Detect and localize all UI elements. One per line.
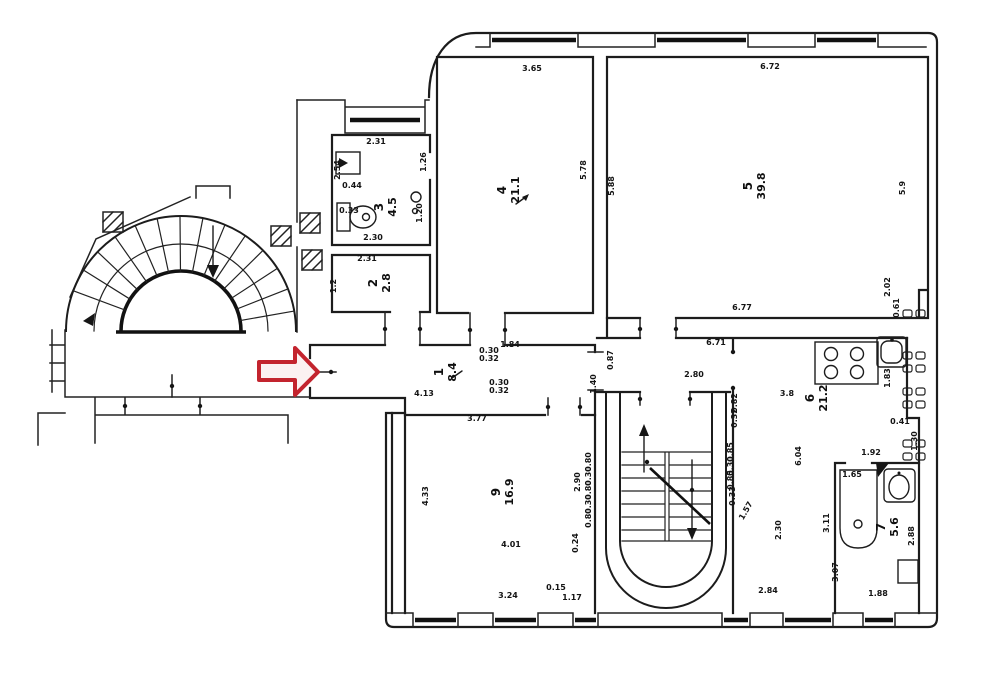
dimension-label: 4.13 bbox=[414, 389, 434, 398]
dimension-label: 0.61 bbox=[892, 298, 901, 318]
room-number-label: 3 bbox=[372, 203, 386, 211]
stair-inner-u bbox=[620, 392, 712, 587]
dimension-label: 5.9 bbox=[898, 180, 907, 195]
room-area-label: 4.5 bbox=[386, 197, 399, 217]
dimension-label: 4.01 bbox=[501, 540, 521, 549]
dimension-label: 1.2 bbox=[329, 279, 338, 293]
spiral-tread-line bbox=[135, 226, 157, 276]
dimension-label: 1.92 bbox=[861, 448, 881, 457]
dimension-label: 3.11 bbox=[822, 513, 831, 533]
main-staircase bbox=[606, 392, 726, 608]
dimension-label: 3.77 bbox=[467, 414, 487, 423]
bathtub-fixture bbox=[840, 470, 877, 548]
dimension-label: 0.32 bbox=[730, 408, 739, 428]
room-area-label: 21.1 bbox=[509, 176, 522, 203]
spiral-outer-arc bbox=[66, 216, 296, 331]
north-arrow-head-icon bbox=[522, 194, 529, 201]
room-area-label: 16.9 bbox=[503, 478, 516, 505]
spiral-staircase bbox=[66, 216, 296, 332]
dimension-labels-layer: 3.656.725.785.885.96.772.020.612.312.540… bbox=[329, 62, 919, 602]
room-number-label: 1 bbox=[432, 368, 446, 376]
bottom-wall-inner bbox=[386, 613, 937, 627]
room-area-label: 2.8 bbox=[380, 273, 393, 293]
room-number-label: 5 bbox=[741, 182, 755, 190]
spiral-tread-line bbox=[115, 237, 147, 282]
dimension-label: 2.90 bbox=[573, 472, 582, 492]
room-number-label: 6 bbox=[803, 394, 817, 402]
spiral-tread-line bbox=[73, 291, 125, 310]
dimension-label: 1.26 bbox=[419, 152, 428, 172]
dimension-label: 1.20 bbox=[415, 203, 424, 223]
interior-walls bbox=[38, 57, 928, 613]
dimension-label: 2.54 bbox=[333, 160, 342, 180]
room-area-label: 5.6 bbox=[888, 517, 901, 537]
stair-break-line bbox=[650, 468, 710, 524]
dimension-label: 1.57 bbox=[737, 500, 755, 522]
spiral-tread-line bbox=[215, 236, 246, 282]
dimension-label: 5.78 bbox=[579, 160, 588, 180]
window-frame-room3 bbox=[297, 100, 429, 133]
dimension-label: 0.32 bbox=[489, 386, 509, 395]
dimension-label: 0.80 bbox=[584, 508, 593, 528]
hatched-column bbox=[302, 250, 322, 270]
dimension-label: 2.30 bbox=[774, 520, 783, 540]
dimension-label: 6.04 bbox=[794, 446, 803, 466]
dimension-label: 2.31 bbox=[357, 254, 377, 263]
dimension-label: 0.24 bbox=[571, 533, 580, 553]
hatched-column bbox=[300, 213, 320, 233]
dimension-label: 1.40 bbox=[589, 374, 598, 394]
room-area-label: 8.4 bbox=[446, 362, 459, 382]
dimension-label: 1.17 bbox=[562, 593, 582, 602]
dimension-label: 0.15 bbox=[546, 583, 566, 592]
dimension-label: 5.88 bbox=[607, 176, 616, 196]
dimension-label: 2.84 bbox=[758, 586, 778, 595]
room-number-label: 2 bbox=[366, 279, 380, 287]
dimension-label: 4.33 bbox=[421, 486, 430, 506]
dimension-label: 2.30 bbox=[363, 233, 383, 242]
spiral-tread-line bbox=[98, 252, 138, 290]
dimension-label: 3.8 bbox=[780, 389, 795, 398]
dimension-label: 1.88 bbox=[868, 589, 888, 598]
dimension-label: 0.44 bbox=[342, 181, 362, 190]
room-number-label: 7 bbox=[874, 523, 888, 531]
kitchen-sink-fixture bbox=[877, 337, 906, 367]
spiral-arrow-left-icon bbox=[83, 313, 95, 326]
dimension-label: 1.84 bbox=[500, 340, 520, 349]
dimension-label: 6.71 bbox=[706, 338, 726, 347]
stove-fixture bbox=[815, 342, 878, 384]
dimension-label: 1.30 bbox=[910, 431, 919, 451]
spiral-tread-line bbox=[231, 268, 277, 298]
room-area-label: 21.2 bbox=[817, 384, 830, 411]
dimension-label: 1.83 bbox=[883, 368, 892, 388]
dimension-label: 0.33 bbox=[339, 206, 359, 215]
dimension-label: 0.87 bbox=[606, 350, 615, 370]
stair-arrow-up-icon bbox=[639, 424, 649, 436]
dimension-label: 3.07 bbox=[831, 562, 840, 582]
spiral-tread-line bbox=[224, 250, 263, 289]
dimension-label: 2.31 bbox=[366, 137, 386, 146]
stair-outer-u bbox=[606, 392, 726, 608]
spiral-inner-arc bbox=[116, 271, 246, 332]
dimension-label: 6.72 bbox=[760, 62, 780, 71]
dimension-label: 0.41 bbox=[890, 417, 910, 426]
dimension-label: 3.24 bbox=[498, 591, 518, 600]
bath-door-leaf bbox=[876, 463, 889, 477]
dimension-label: 3.65 bbox=[522, 64, 542, 73]
dimension-label: 2.88 bbox=[907, 526, 916, 546]
dimension-label: 6.77 bbox=[732, 303, 752, 312]
room-area-label: 39.8 bbox=[755, 172, 768, 199]
bath-boiler-box bbox=[898, 560, 918, 583]
room-number-label: 4 bbox=[495, 186, 509, 194]
stair-treads bbox=[622, 452, 712, 541]
room-labels-layer: 18.422.834.5421.1539.8621.275.6916.9 bbox=[366, 172, 901, 536]
spiral-mid-arc bbox=[94, 244, 268, 331]
spiral-tread-line bbox=[237, 289, 288, 309]
dimension-label: 1.65 bbox=[842, 470, 862, 479]
room-number-label: 9 bbox=[489, 488, 503, 496]
dimension-label: 0.32 bbox=[479, 354, 499, 363]
spiral-tread-line bbox=[83, 270, 130, 299]
stair-arrow-down-icon bbox=[687, 528, 697, 540]
floor-plan-svg: 18.422.834.5421.1539.8621.275.6916.9 3.6… bbox=[0, 0, 1000, 680]
floor-plan-scan: 18.422.834.5421.1539.8621.275.6916.9 3.6… bbox=[0, 0, 1000, 680]
hatched-column bbox=[271, 226, 291, 246]
dimension-label: 0.33 bbox=[728, 486, 737, 506]
dimension-label: 2.02 bbox=[883, 277, 892, 297]
bath-sink-fixture bbox=[884, 469, 915, 502]
dimension-label: 2.80 bbox=[684, 370, 704, 379]
window-sill bbox=[350, 40, 893, 620]
